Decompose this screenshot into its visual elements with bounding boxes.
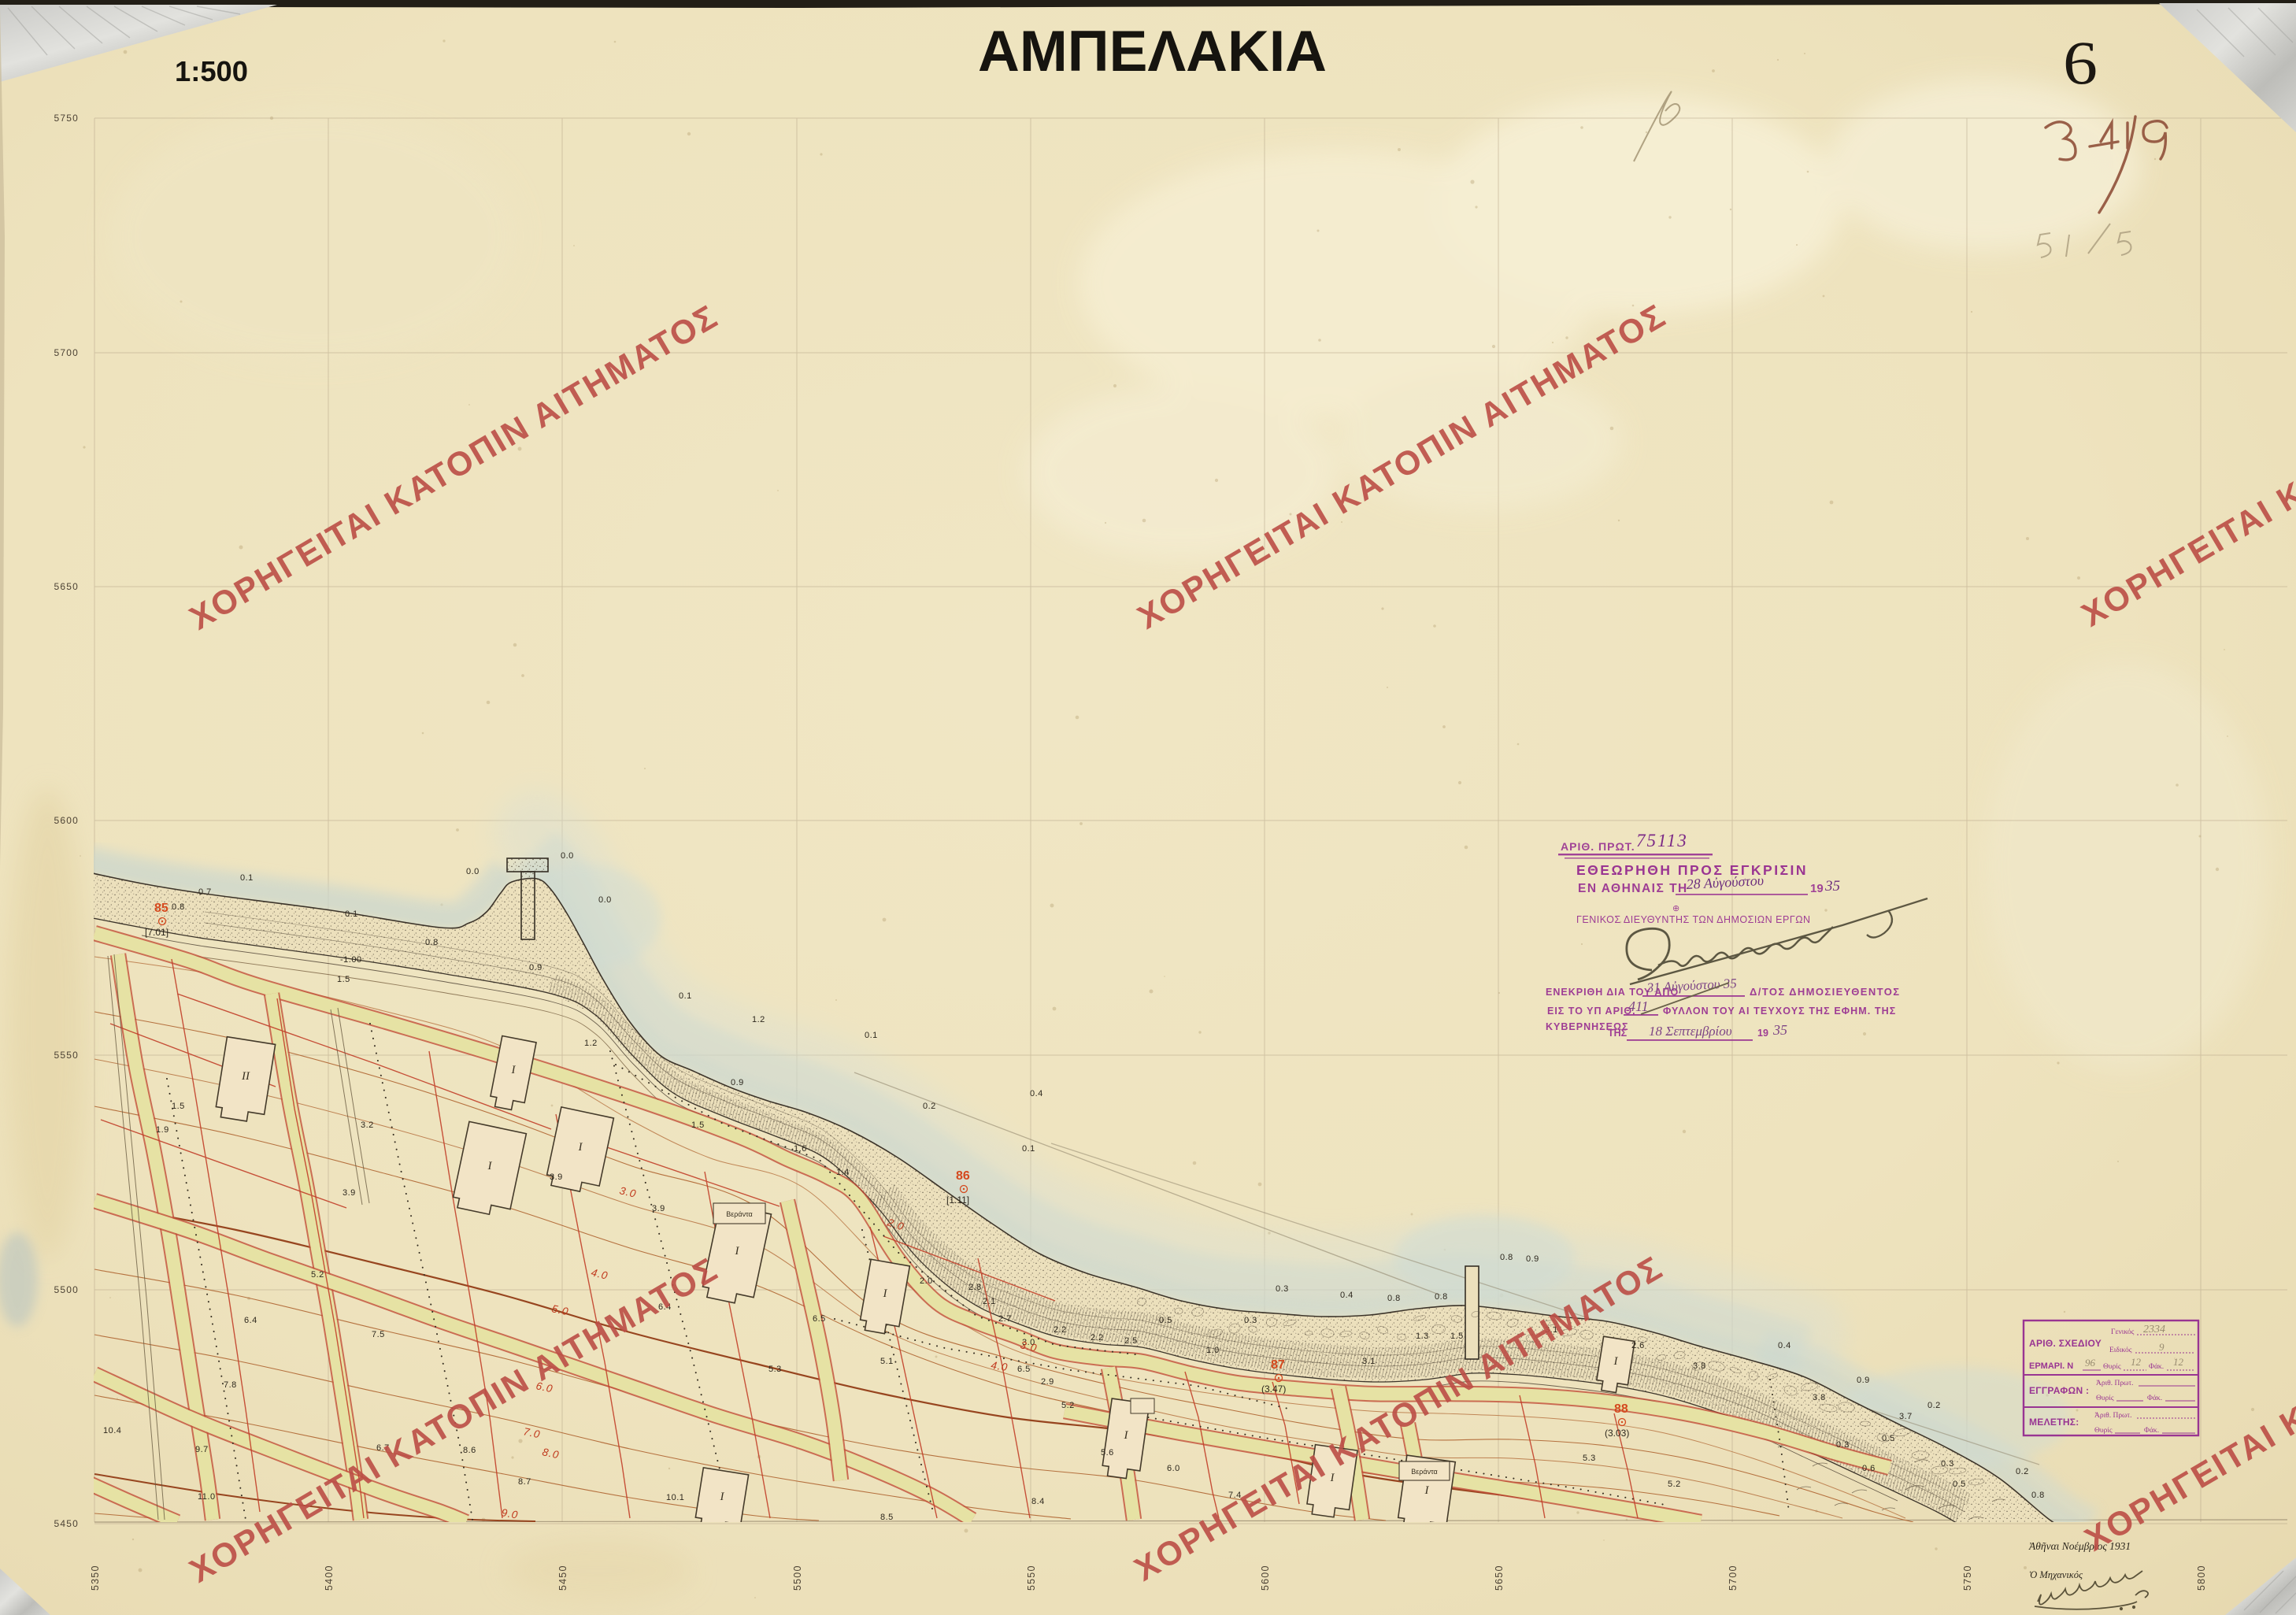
svg-text:5450: 5450	[54, 1518, 80, 1529]
svg-text:ΕΙΣ ΤΟ ΥΠ ΑΡΙΘ.: ΕΙΣ ΤΟ ΥΠ ΑΡΙΘ.	[1547, 1006, 1636, 1017]
svg-text:19: 19	[1757, 1028, 1768, 1039]
svg-text:0.1: 0.1	[865, 1031, 878, 1040]
svg-text:75113: 75113	[1636, 831, 1688, 850]
svg-text:5400: 5400	[324, 1565, 335, 1591]
svg-text:ΓΕΝΙΚΟΣ ΔΙΕΥΘΥΝΤΗΣ ΤΩΝ ΔΗΜΟΣΙΩ: ΓΕΝΙΚΟΣ ΔΙΕΥΘΥΝΤΗΣ ΤΩΝ ΔΗΜΟΣΙΩΝ ΕΡΓΩΝ	[1576, 914, 1811, 925]
svg-text:3.8: 3.8	[1813, 1393, 1826, 1402]
svg-text:0.8: 0.8	[1387, 1294, 1401, 1303]
svg-text:1.5: 1.5	[1450, 1332, 1464, 1341]
svg-text:Φάκ.: Φάκ.	[2147, 1395, 2162, 1402]
svg-text:5600: 5600	[1260, 1565, 1271, 1591]
svg-text:6.5: 6.5	[1017, 1365, 1031, 1374]
svg-text:I: I	[720, 1491, 725, 1503]
svg-text:6.0: 6.0	[1167, 1464, 1180, 1473]
svg-text:0.0: 0.0	[598, 895, 612, 905]
svg-text:0.9: 0.9	[731, 1078, 744, 1087]
svg-text:3.7: 3.7	[1899, 1412, 1913, 1421]
svg-text:2.8: 2.8	[968, 1283, 982, 1292]
svg-text:2334: 2334	[2143, 1324, 2165, 1335]
svg-text:0.8: 0.8	[2031, 1491, 2045, 1500]
svg-text:0.0: 0.0	[561, 851, 574, 861]
svg-text:86: 86	[956, 1169, 970, 1183]
svg-text:5550: 5550	[1026, 1565, 1037, 1591]
svg-text:4.0: 4.0	[991, 1359, 1009, 1373]
svg-text:1.4: 1.4	[836, 1168, 850, 1177]
svg-text:5.2: 5.2	[1061, 1401, 1075, 1410]
svg-text:88: 88	[1614, 1402, 1628, 1416]
svg-text:ΕΓΓΡΑΦΩΝ :: ΕΓΓΡΑΦΩΝ :	[2029, 1385, 2089, 1396]
svg-text:18 Σεπτεμβρίου: 18 Σεπτεμβρίου	[1649, 1024, 1732, 1039]
svg-text:I: I	[735, 1245, 740, 1258]
svg-text:5800: 5800	[2196, 1565, 2207, 1591]
svg-text:2.1: 2.1	[983, 1297, 996, 1306]
svg-text:ΑΡΙΘ. ΠΡΩΤ.: ΑΡΙΘ. ΠΡΩΤ.	[1561, 840, 1635, 853]
svg-text:ΕΝ ΑΘΗΝΑΙΣ ΤΗ: ΕΝ ΑΘΗΝΑΙΣ ΤΗ	[1578, 882, 1688, 895]
svg-text:I: I	[487, 1160, 493, 1172]
svg-text:3.8: 3.8	[1693, 1361, 1706, 1371]
svg-text:1:500: 1:500	[175, 55, 248, 87]
svg-text:11.0: 11.0	[198, 1492, 216, 1502]
svg-text:0.8: 0.8	[425, 938, 439, 947]
svg-text:5.1: 5.1	[880, 1357, 894, 1366]
svg-text:ΑΜΠΕΛΑΚΙΑ: ΑΜΠΕΛΑΚΙΑ	[978, 20, 1327, 83]
svg-text:8.5: 8.5	[880, 1513, 894, 1522]
svg-text:1.0: 1.0	[1206, 1346, 1220, 1355]
svg-text:0.1: 0.1	[345, 909, 358, 919]
svg-text:I: I	[511, 1064, 517, 1076]
svg-text:I: I	[1424, 1484, 1430, 1497]
svg-text:5.3: 5.3	[768, 1365, 782, 1374]
svg-text:3.1: 3.1	[1362, 1357, 1376, 1366]
svg-text:0.5: 0.5	[1159, 1316, 1172, 1325]
svg-text:10.4: 10.4	[103, 1426, 121, 1435]
svg-text:Θυρίς: Θυρίς	[2096, 1395, 2114, 1402]
svg-text:2.5: 2.5	[1124, 1336, 1138, 1346]
svg-text:Θυρίς: Θυρίς	[2094, 1427, 2113, 1435]
svg-text:I: I	[883, 1287, 888, 1300]
svg-text:5600: 5600	[54, 815, 80, 826]
svg-text:0.9: 0.9	[529, 963, 543, 972]
svg-text:35: 35	[1824, 878, 1840, 895]
svg-text:I: I	[1613, 1355, 1619, 1368]
svg-text:Ὁ Μηχανικός: Ὁ Μηχανικός	[2029, 1569, 2083, 1580]
svg-text:ΦΥΛΛΟΝ ΤΟΥ ΑΙ ΤΕΥΧΟΥΣ ΤΗΣ ΕΦΗΜ: ΦΥΛΛΟΝ ΤΟΥ ΑΙ ΤΕΥΧΟΥΣ ΤΗΣ ΕΦΗΜ. ΤΗΣ	[1663, 1006, 1896, 1017]
svg-text:Δ/ΤΟΣ ΔΗΜΟΣΙΕΥΘΕΝΤΟΣ: Δ/ΤΟΣ ΔΗΜΟΣΙΕΥΘΕΝΤΟΣ	[1750, 986, 1900, 998]
svg-text:96: 96	[2085, 1357, 2096, 1369]
svg-text:Ειδικός: Ειδικός	[2109, 1346, 2132, 1354]
svg-text:0.4: 0.4	[1030, 1089, 1043, 1098]
svg-text:5550: 5550	[54, 1050, 80, 1061]
svg-text:I: I	[578, 1141, 583, 1154]
svg-text:3.9: 3.9	[550, 1172, 563, 1182]
svg-text:(3.03): (3.03)	[1605, 1428, 1629, 1439]
svg-text:1.3: 1.3	[1416, 1332, 1429, 1341]
svg-text:0.3: 0.3	[1941, 1459, 1954, 1469]
svg-text:0.9: 0.9	[1526, 1254, 1539, 1264]
svg-text:ΕΡΜΑΡΙ. Ν: ΕΡΜΑΡΙ. Ν	[2029, 1361, 2073, 1371]
svg-text:(3.47): (3.47)	[1261, 1383, 1286, 1395]
svg-text:0.1: 0.1	[1022, 1144, 1035, 1154]
svg-text:I: I	[1124, 1429, 1129, 1442]
svg-text:Γενικός: Γενικός	[2111, 1328, 2135, 1336]
svg-text:⊕: ⊕	[1672, 904, 1679, 913]
svg-text:0.8: 0.8	[172, 902, 185, 912]
svg-text:8.6: 8.6	[463, 1446, 476, 1455]
svg-text:5500: 5500	[54, 1284, 80, 1295]
svg-text:0.6: 0.6	[1862, 1464, 1876, 1473]
svg-text:0.3: 0.3	[1244, 1316, 1257, 1325]
svg-text:0.0: 0.0	[466, 867, 480, 876]
svg-text:19: 19	[1810, 882, 1824, 895]
svg-text:6: 6	[2063, 28, 2098, 97]
svg-text:5500: 5500	[792, 1565, 803, 1591]
svg-text:35: 35	[1772, 1022, 1787, 1038]
svg-text:ΜΕΛΕΤΗΣ:: ΜΕΛΕΤΗΣ:	[2029, 1417, 2079, 1428]
svg-text:Φάκ.: Φάκ.	[2144, 1427, 2159, 1435]
svg-text:2.2: 2.2	[1054, 1325, 1067, 1335]
svg-text:3.9: 3.9	[652, 1204, 665, 1213]
svg-text:9: 9	[2159, 1341, 2165, 1353]
svg-text:5700: 5700	[54, 347, 80, 358]
svg-text:0.5: 0.5	[1882, 1434, 1895, 1443]
svg-text:9.7: 9.7	[195, 1445, 209, 1454]
svg-text:0.4: 0.4	[1340, 1291, 1354, 1300]
svg-text:Βεράντα: Βεράντα	[1411, 1468, 1437, 1476]
svg-text:12: 12	[2131, 1356, 2142, 1368]
svg-text:0.1: 0.1	[679, 991, 692, 1001]
svg-text:0.7: 0.7	[198, 887, 212, 897]
svg-text:Βεράντα: Βεράντα	[726, 1210, 752, 1218]
svg-text:Θυρίς: Θυρίς	[2103, 1363, 2121, 1371]
svg-text:1.9: 1.9	[156, 1125, 169, 1135]
svg-text:1.2: 1.2	[752, 1015, 765, 1024]
svg-text:5450: 5450	[557, 1565, 568, 1591]
svg-text:0.2: 0.2	[2016, 1467, 2029, 1476]
svg-text:5.2: 5.2	[311, 1270, 324, 1280]
svg-text:5650: 5650	[54, 581, 80, 592]
svg-text:[7.01]: [7.01]	[145, 927, 168, 938]
svg-text:Ἀριθ. Πρωτ.: Ἀριθ. Πρωτ.	[2096, 1380, 2134, 1387]
svg-text:II: II	[241, 1070, 250, 1083]
svg-text:5700: 5700	[1728, 1565, 1739, 1591]
svg-text:5.6: 5.6	[1101, 1448, 1114, 1458]
svg-text:5750: 5750	[1962, 1565, 1973, 1591]
svg-text:-1.00: -1.00	[340, 955, 362, 965]
svg-text:7.8: 7.8	[224, 1380, 237, 1390]
svg-text:5750: 5750	[54, 113, 80, 124]
svg-text:0.3: 0.3	[1276, 1284, 1289, 1294]
svg-text:[1.11]: [1.11]	[946, 1195, 969, 1206]
svg-text:5.3: 5.3	[1583, 1454, 1596, 1463]
svg-text:0.8: 0.8	[1435, 1292, 1448, 1302]
svg-text:0.3: 0.3	[1836, 1440, 1850, 1450]
svg-text:Φάκ.: Φάκ.	[2149, 1363, 2164, 1371]
svg-text:1.5: 1.5	[691, 1120, 705, 1130]
svg-text:1.2: 1.2	[584, 1039, 598, 1048]
svg-text:ΑΡΙΘ. ΣΧΕΔΙΟΥ: ΑΡΙΘ. ΣΧΕΔΙΟΥ	[2029, 1338, 2102, 1349]
svg-text:1.5: 1.5	[172, 1102, 185, 1111]
svg-text:6.5: 6.5	[813, 1314, 826, 1324]
svg-text:6.4: 6.4	[244, 1316, 257, 1325]
svg-text:2.0: 2.0	[920, 1276, 933, 1286]
svg-text:3.9: 3.9	[343, 1188, 356, 1198]
svg-text:5.2: 5.2	[1668, 1480, 1681, 1489]
svg-text:85: 85	[154, 902, 168, 915]
svg-text:0.9: 0.9	[1857, 1376, 1870, 1385]
svg-text:0.8: 0.8	[1500, 1253, 1513, 1262]
svg-text:Ἀριθ. Πρωτ.: Ἀριθ. Πρωτ.	[2094, 1412, 2132, 1420]
svg-text:2.2: 2.2	[1091, 1333, 1104, 1343]
svg-text:1.5: 1.5	[337, 975, 350, 984]
svg-text:2.6: 2.6	[1631, 1341, 1645, 1350]
svg-text:10.1: 10.1	[666, 1493, 684, 1502]
svg-text:12: 12	[2173, 1356, 2184, 1368]
svg-text:5350: 5350	[90, 1565, 101, 1591]
svg-text:0.4: 0.4	[1778, 1341, 1791, 1350]
svg-text:3.2: 3.2	[361, 1120, 374, 1130]
svg-text:8.7: 8.7	[518, 1477, 531, 1487]
svg-text:0.1: 0.1	[240, 873, 254, 883]
svg-text:2.7: 2.7	[998, 1314, 1012, 1324]
svg-text:0.5: 0.5	[1953, 1480, 1966, 1489]
svg-text:7.5: 7.5	[372, 1330, 385, 1339]
svg-text:0.2: 0.2	[1928, 1401, 1941, 1410]
svg-text:87: 87	[1271, 1358, 1285, 1372]
svg-text:2.9: 2.9	[1041, 1377, 1054, 1387]
svg-text:1.6: 1.6	[794, 1144, 807, 1154]
svg-text:0.2: 0.2	[923, 1102, 936, 1111]
svg-text:8.4: 8.4	[1031, 1497, 1045, 1506]
svg-text:ΤΗΣ: ΤΗΣ	[1608, 1028, 1628, 1039]
svg-text:5650: 5650	[1494, 1565, 1505, 1591]
